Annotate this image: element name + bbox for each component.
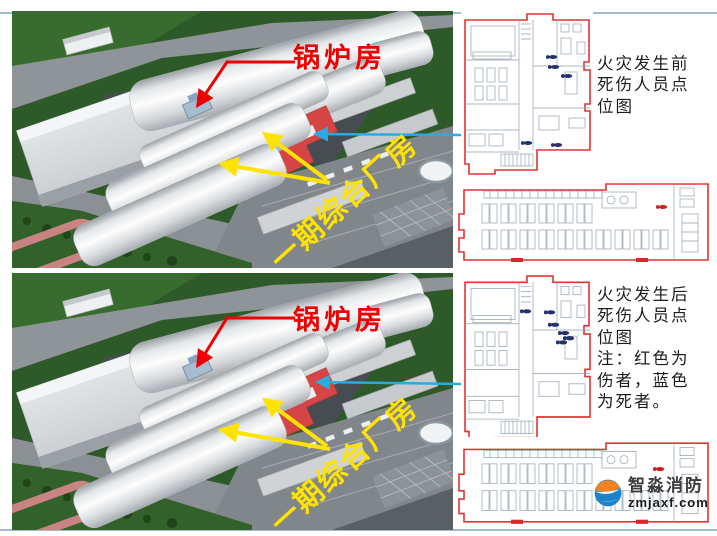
caption-after: 火灾发生后 死伤人员点 位图 注：红色为 伤者，蓝色 为死者。: [597, 284, 715, 413]
factory-3d-view-before: [12, 11, 453, 268]
injured-marker: [653, 467, 664, 471]
caption-line: 火灾发生后: [597, 284, 715, 305]
caption-line: 位图: [597, 327, 715, 348]
globe-icon: [592, 477, 624, 509]
caption-line: 死伤人员点: [597, 305, 715, 326]
boiler-room-label-before: 锅炉房: [293, 45, 386, 72]
floorplan-offices-before: [461, 12, 593, 178]
floorplan-offices-after: [461, 274, 593, 446]
brand-logo: 智淼消防 zmjaxf.com: [592, 477, 709, 510]
factory-3d-view-after: [12, 273, 453, 530]
note-line: 为死者。: [597, 391, 715, 412]
brand-name: 智淼消防: [628, 477, 709, 496]
caption-before: 火灾发生前 死伤人员点 位图: [597, 53, 715, 117]
caption-line: 死伤人员点: [597, 74, 715, 95]
note-line: 注：红色为: [597, 348, 715, 369]
floorplan-hall-before: [456, 178, 715, 266]
boiler-room-label-after: 锅炉房: [293, 307, 386, 334]
caption-line: 火灾发生前: [597, 53, 715, 74]
injured-marker: [656, 205, 667, 209]
slide: 锅炉房 一期综合厂房 锅炉房 一期综合厂房 火灾发生前 死伤人员点 位图 火灾发…: [0, 0, 717, 536]
note-line: 伤者，蓝色: [597, 370, 715, 391]
caption-line: 位图: [597, 96, 715, 117]
brand-url: zmjaxf.com: [628, 496, 709, 510]
